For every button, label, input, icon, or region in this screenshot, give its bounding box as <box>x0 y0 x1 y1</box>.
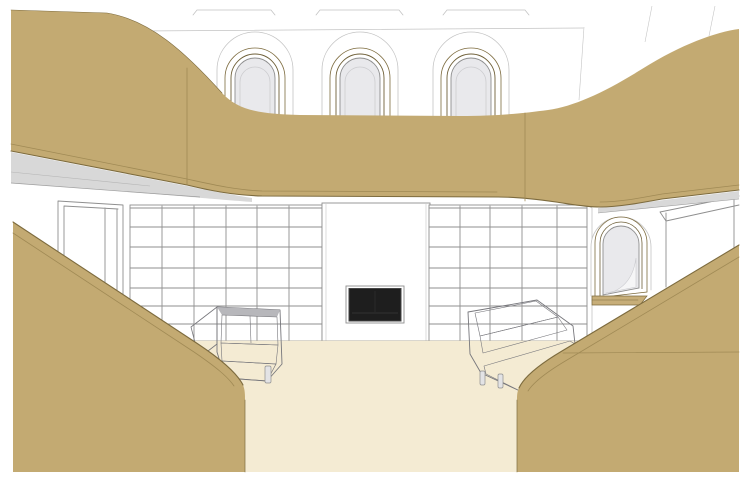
niche-right: Arched niche on right wall <box>591 217 651 305</box>
arched-window-2: Arched clerestory window (center) <box>322 32 398 118</box>
render-viewport: Ceiling with three skylight well marks A… <box>0 0 750 487</box>
arched-window-3: Arched clerestory window (right) <box>433 32 509 118</box>
bookshelf-right: Empty shelving grid, right of fireplace <box>429 205 592 341</box>
interior-rendering-canvas: Ceiling with three skylight well marks A… <box>0 0 750 487</box>
chimney-breast: White chimney breast panel <box>322 203 430 345</box>
fireplace: Recessed black fireplace opening <box>346 286 404 323</box>
